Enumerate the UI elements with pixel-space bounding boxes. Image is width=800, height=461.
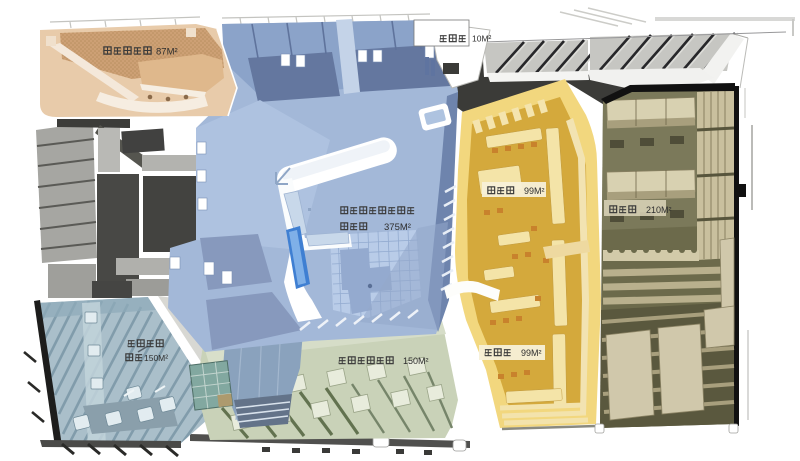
svg-text:10M²: 10M² [472, 34, 492, 44]
svg-text:87M²: 87M² [156, 47, 178, 58]
svg-text:210M²: 210M² [646, 205, 672, 215]
svg-text:375M²: 375M² [384, 222, 411, 233]
svg-text:150M²: 150M² [403, 356, 429, 366]
svg-text:99M²: 99M² [521, 348, 542, 358]
svg-text:150M²: 150M² [144, 353, 168, 363]
svg-text:99M²: 99M² [524, 186, 545, 196]
